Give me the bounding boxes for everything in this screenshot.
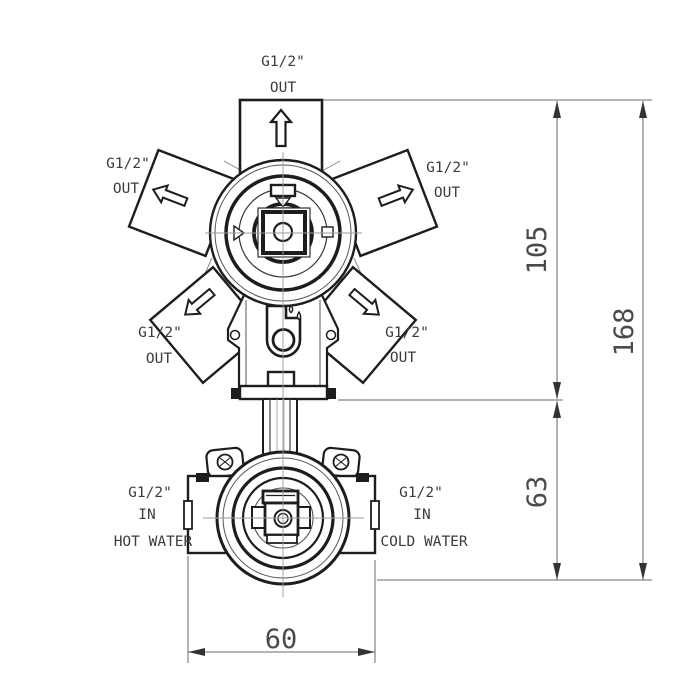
arrow-down-icon: [553, 382, 561, 399]
arrow-down-icon: [553, 563, 561, 580]
lower-right-port-flow-label: OUT: [390, 350, 416, 366]
arrow-up-icon: [553, 101, 561, 118]
dim-63-label: 63: [522, 476, 553, 509]
bottom-assembly: [184, 447, 379, 584]
cold-inlet-medium-label: COLD WATER: [380, 534, 468, 550]
top-cartridge-spindle: [258, 208, 310, 257]
riser-pipe: [263, 399, 297, 455]
cold-inlet-size-label: G1/2": [399, 485, 443, 501]
lower-right-port-size-label: G1/2": [385, 325, 429, 341]
upper-left-port-size-label: G1/2": [106, 156, 150, 172]
hot-inlet-flow-label: IN: [138, 507, 155, 523]
hot-inlet-medium-label: HOT WATER: [114, 534, 193, 550]
top-port-flow-label: OUT: [270, 80, 296, 96]
arrow-up-icon: [553, 401, 561, 418]
hot-inlet-size-label: G1/2": [128, 485, 172, 501]
dim-105-label: 105: [522, 226, 553, 275]
lower-left-port-flow-label: OUT: [146, 351, 172, 367]
cold-inlet-flow-label: IN: [413, 507, 430, 523]
side-port-right: [371, 501, 379, 529]
upper-right-port-flow-label: OUT: [434, 185, 460, 201]
upper-right-port-size-label: G1/2": [426, 160, 470, 176]
dim-168-label: 168: [609, 308, 640, 357]
mounting-collar: [240, 386, 327, 399]
arrow-down-icon: [639, 563, 647, 580]
technical-drawing-canvas: G1/2" OUT G1/2" OUT G1/2" OUT G1/2" OUT …: [0, 0, 700, 700]
arrow-up-icon: [639, 101, 647, 118]
lower-left-port-size-label: G1/2": [138, 325, 182, 341]
flange-screw-left-icon: [231, 331, 240, 340]
flange-screw-right-icon: [327, 331, 336, 340]
dim-60-label: 60: [265, 624, 298, 655]
upper-left-port-flow-label: OUT: [113, 181, 139, 197]
side-port-left: [184, 501, 192, 529]
top-port-size-label: G1/2": [261, 54, 305, 70]
arrow-left-icon: [188, 648, 205, 656]
valve-drawing: G1/2" OUT G1/2" OUT G1/2" OUT G1/2" OUT …: [0, 0, 700, 700]
arrow-right-icon: [358, 648, 375, 656]
